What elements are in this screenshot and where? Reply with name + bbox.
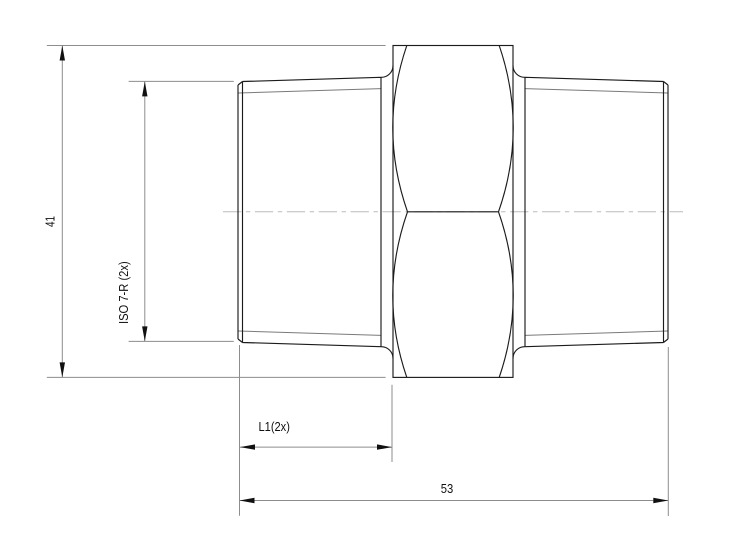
svg-text:ISO 7-R (2x): ISO 7-R (2x) [116,261,131,324]
svg-text:53: 53 [441,481,454,496]
svg-text:41: 41 [42,216,57,227]
svg-text:L1(2x): L1(2x) [259,419,290,434]
